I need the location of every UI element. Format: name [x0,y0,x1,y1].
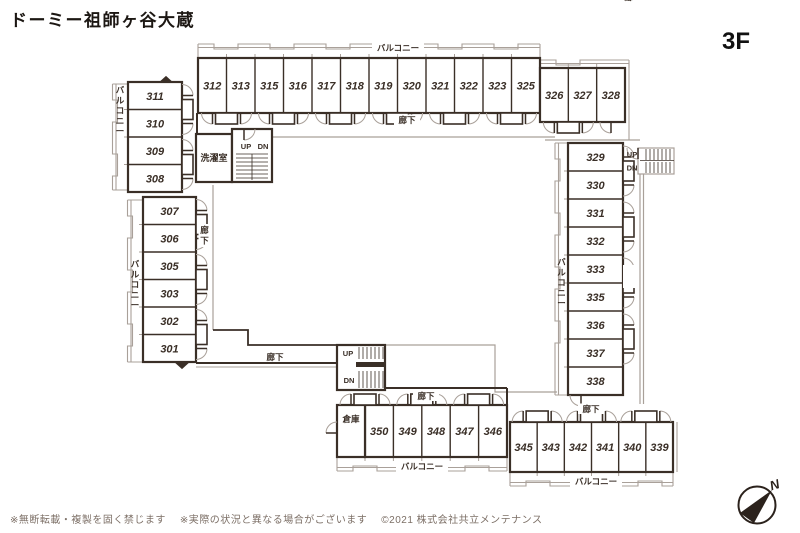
stairs-down-label-ne: DN [627,164,638,173]
room-305: 305 [160,261,179,273]
room-342: 342 [569,442,587,454]
room-333: 333 [586,264,604,276]
wing-left-upper-rooms: 311310309308 [128,82,193,192]
wing-top-rooms: 312313315316317318319320321322323325 [198,58,540,124]
room-303: 303 [160,288,178,300]
room-340: 340 [623,442,642,454]
room-332: 332 [586,236,604,248]
room-320: 320 [403,81,422,93]
room-335: 335 [586,292,605,304]
room-325: 325 [517,81,536,93]
room-343: 343 [542,442,560,454]
room-326: 326 [545,90,564,102]
floor-plan: 3123133153163173183193203213223233253263… [0,0,800,533]
balcony-label-left-upper: バ [116,85,125,95]
room-301: 301 [160,343,178,355]
stairs-down-label-south: DN [344,376,355,385]
balcony-label-left-lower: ニ [131,290,140,300]
balcony-label-left-upper: コ [116,106,125,116]
storage-label: 倉庫 [341,414,360,424]
corridor-label-bottom-left: 廊下 [417,391,435,401]
room-329: 329 [586,152,605,164]
room-309: 309 [146,146,165,158]
balcony-label-left-lower: バ [131,259,140,269]
room-347: 347 [455,426,474,438]
balcony-label-left-lower: ー [131,300,140,310]
storage-room [337,405,365,457]
room-349: 349 [398,426,417,438]
room-345: 345 [514,442,533,454]
room-327: 327 [573,90,592,102]
corridor-label-top: 廊下 [398,115,416,125]
stairs-down-label-nw: DN [258,142,269,151]
room-341: 341 [596,442,614,454]
compass-icon: N [739,476,782,524]
corridor-label-left: 廊 [200,225,209,235]
balcony-label-bottom-right: バルコニー [575,477,617,487]
room-339: 339 [650,442,669,454]
room-318: 318 [346,81,365,93]
balcony-label-left-upper: ル [116,95,125,105]
balcony-label-top: バルコニー [377,43,419,53]
balcony-label-right: コ [557,278,566,288]
balcony-label-right: ニ [557,288,566,298]
balcony-label-left-lower: コ [131,280,140,290]
room-319: 319 [374,81,393,93]
room-321: 321 [431,81,449,93]
stairs-up-label-south: UP [343,349,353,358]
balcony-label-bottom-left: バルコニー [401,462,443,472]
balcony-label-left-upper: ニ [116,116,125,126]
room-306: 306 [160,233,179,245]
wing-bottom-right-rooms: 345343342341340339 [510,411,673,472]
laundry-label: 洗濯室 [200,152,227,163]
room-302: 302 [160,316,178,328]
room-307: 307 [160,206,179,218]
balcony-label-left-upper: ー [116,126,125,136]
corridor-label-left: 下 [200,236,209,246]
stairs-up-label-ne: UP [627,150,637,159]
balcony-label-left-lower: ル [131,269,140,279]
room-313: 313 [232,81,250,93]
room-317: 317 [317,81,336,93]
room-315: 315 [260,81,279,93]
room-310: 310 [146,118,165,130]
room-316: 316 [289,81,308,93]
room-330: 330 [586,180,605,192]
room-328: 328 [602,90,621,102]
wing-left-lower-rooms: 307306305303302301 [143,197,207,362]
balcony-label-right: バ [557,257,566,267]
room-336: 336 [586,320,605,332]
balcony-label-right: ー [557,298,566,308]
room-323: 323 [488,81,506,93]
corridor-label-south: 廊下 [266,352,284,362]
room-322: 322 [460,81,478,93]
room-308: 308 [146,173,165,185]
footer-note-copyright: ©2021 株式会社共立メンテナンス [381,511,542,526]
room-311: 311 [146,91,164,103]
room-338: 338 [586,376,605,388]
room-337: 337 [586,348,605,360]
corridor-label-bottom-right: 廊下 [582,404,600,414]
room-350: 350 [370,426,389,438]
room-348: 348 [427,426,446,438]
plan-label: 下 [624,0,633,2]
room-331: 331 [586,208,604,220]
balcony-label-right: ル [557,267,566,277]
footer-notes: ※無断転載・複製を固く禁じます ※実際の状況と異なる場合がございます ©2021… [10,511,542,526]
floor-plan-page: ドーミー祖師ヶ谷大蔵 3F 31231331531631731831932032… [0,0,800,533]
footer-note-reproduction: ※無断転載・複製を固く禁じます [10,511,166,526]
stairs-up-label-nw: UP [241,142,251,151]
room-346: 346 [484,426,503,438]
footer-note-disclaimer: ※実際の状況と異なる場合がございます [180,511,367,526]
room-312: 312 [203,81,221,93]
